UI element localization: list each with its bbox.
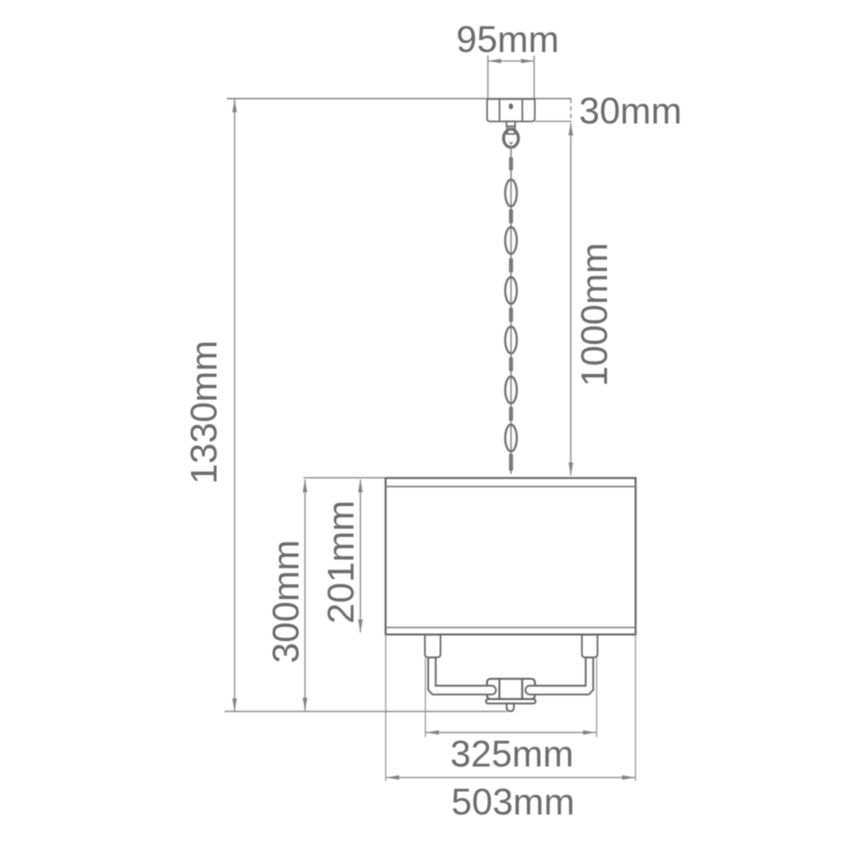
svg-text:503mm: 503mm	[451, 782, 574, 823]
svg-text:300mm: 300mm	[266, 540, 307, 663]
svg-text:1330mm: 1330mm	[184, 340, 225, 484]
svg-text:30mm: 30mm	[579, 91, 682, 132]
svg-text:201mm: 201mm	[320, 500, 361, 623]
svg-text:95mm: 95mm	[456, 19, 559, 60]
svg-text:1000mm: 1000mm	[574, 243, 615, 387]
svg-text:325mm: 325mm	[450, 734, 573, 775]
